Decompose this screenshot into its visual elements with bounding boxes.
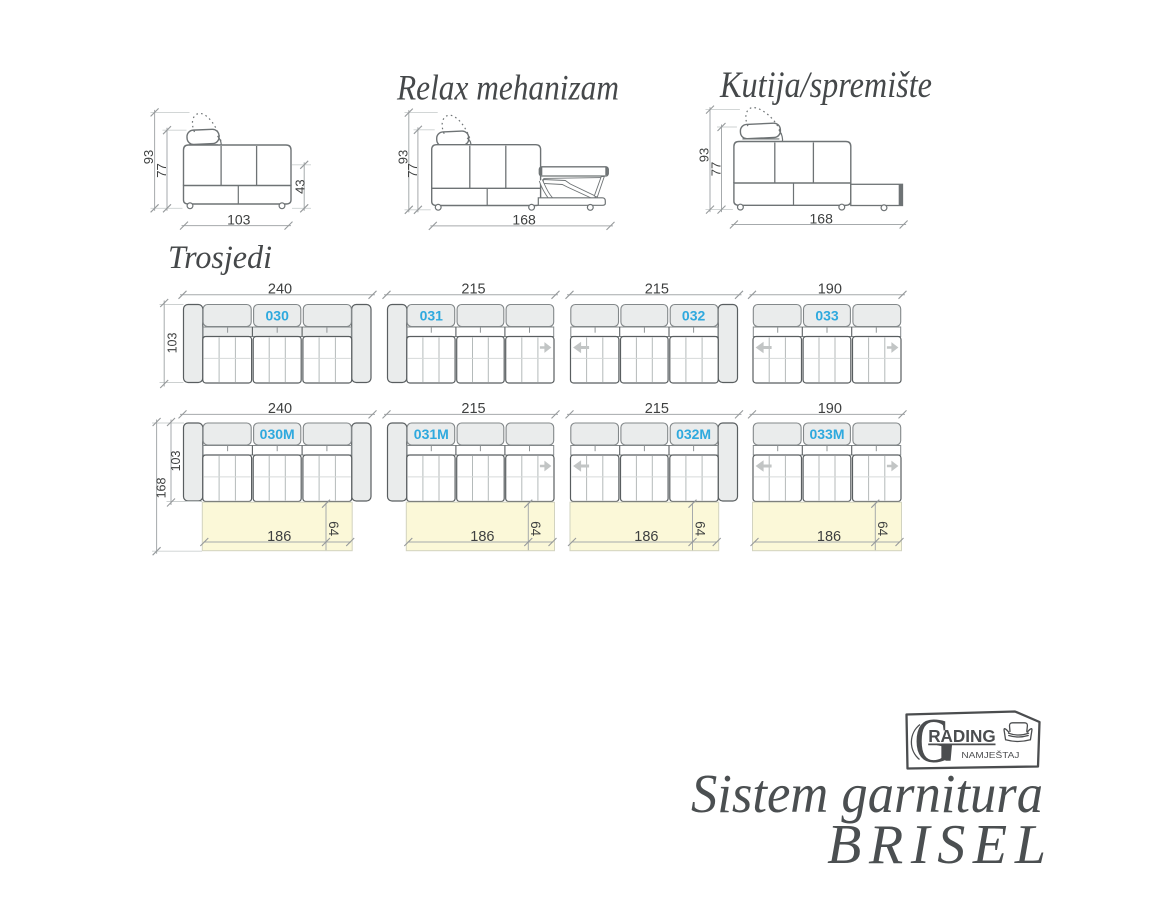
svg-text:190: 190	[818, 282, 842, 298]
svg-text:168: 168	[810, 210, 834, 226]
svg-text:033M: 033M	[809, 426, 844, 442]
svg-text:64: 64	[875, 521, 890, 537]
svg-text:215: 215	[461, 401, 485, 417]
svg-text:240: 240	[268, 401, 292, 417]
svg-text:93: 93	[396, 150, 411, 164]
svg-text:NAMJEŠTAJ: NAMJEŠTAJ	[961, 751, 1019, 760]
svg-text:93: 93	[141, 150, 156, 164]
svg-text:186: 186	[817, 529, 841, 545]
svg-text:030: 030	[266, 307, 290, 323]
svg-text:103: 103	[169, 451, 183, 472]
svg-text:240: 240	[268, 282, 292, 298]
svg-text:186: 186	[634, 529, 658, 545]
svg-text:186: 186	[470, 529, 494, 545]
svg-text:64: 64	[326, 521, 341, 537]
svg-text:168: 168	[155, 478, 169, 499]
svg-text:031: 031	[420, 307, 444, 323]
svg-text:RADING: RADING	[928, 726, 996, 746]
svg-text:64: 64	[528, 521, 543, 537]
svg-text:103: 103	[227, 211, 251, 227]
svg-text:031M: 031M	[414, 426, 449, 442]
svg-text:Trosjedi: Trosjedi	[168, 240, 272, 276]
svg-text:43: 43	[292, 179, 307, 193]
svg-text:Kutija/spremište: Kutija/spremište	[719, 65, 932, 106]
svg-text:77: 77	[709, 162, 724, 176]
svg-text:186: 186	[267, 529, 291, 545]
svg-text:033: 033	[815, 307, 839, 323]
svg-text:168: 168	[512, 212, 536, 228]
svg-text:215: 215	[461, 282, 485, 298]
svg-text:77: 77	[405, 163, 420, 177]
svg-text:215: 215	[645, 282, 669, 298]
svg-text:032M: 032M	[676, 426, 711, 442]
svg-text:64: 64	[692, 521, 707, 537]
svg-text:103: 103	[165, 333, 179, 354]
svg-text:BRISEL: BRISEL	[827, 814, 1054, 876]
svg-text:77: 77	[154, 163, 169, 177]
svg-text:93: 93	[697, 148, 712, 162]
svg-text:030M: 030M	[260, 426, 295, 442]
svg-text:Relax mehanizam: Relax mehanizam	[396, 68, 619, 108]
svg-text:215: 215	[645, 401, 669, 417]
svg-text:032: 032	[682, 307, 706, 323]
svg-text:190: 190	[818, 401, 842, 417]
